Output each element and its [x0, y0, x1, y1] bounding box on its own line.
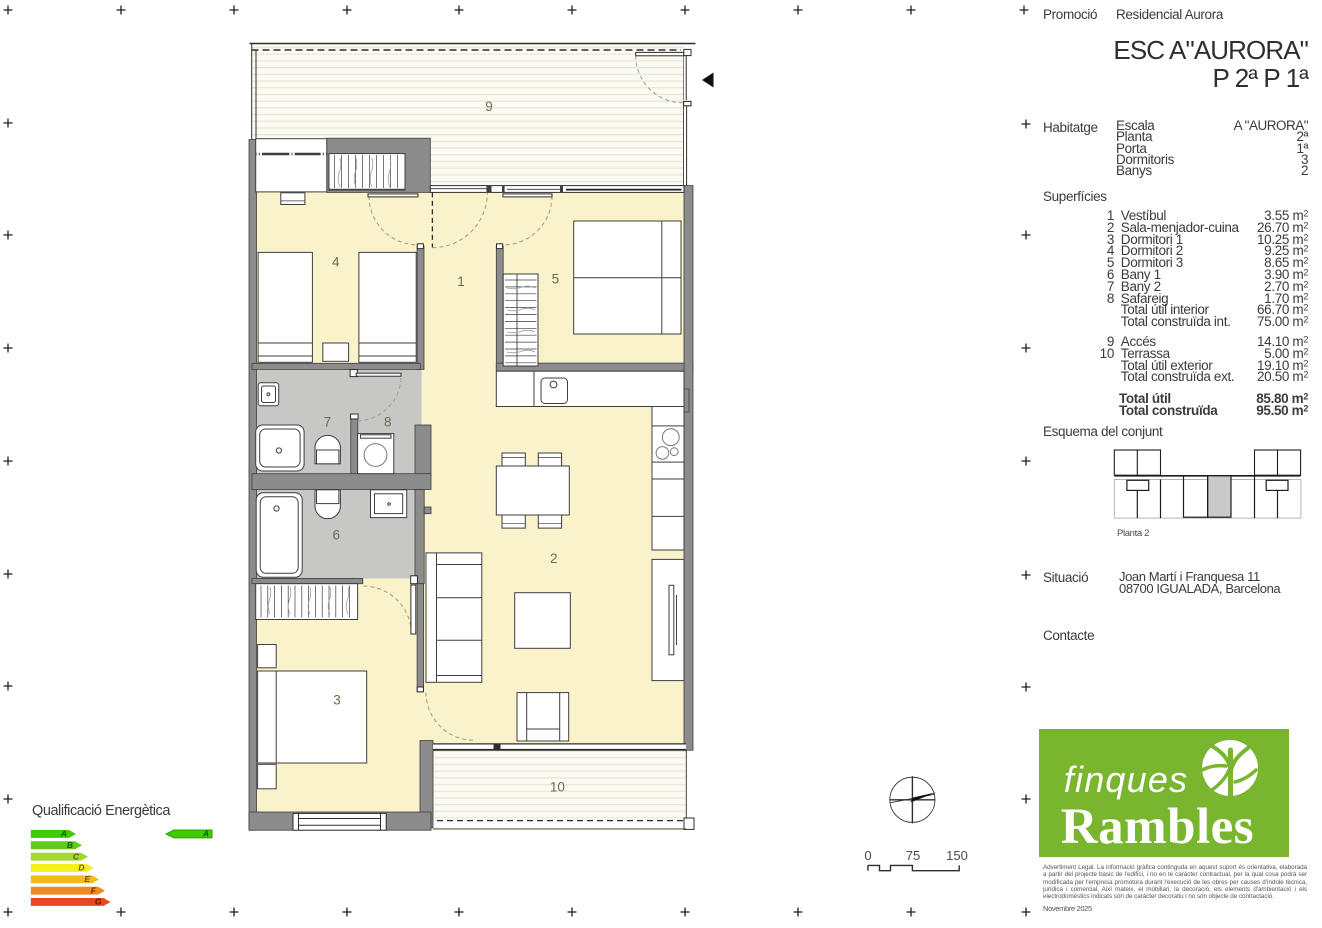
- svg-text:7: 7: [324, 414, 332, 429]
- svg-text:2: 2: [550, 551, 558, 566]
- svg-text:G: G: [95, 897, 102, 907]
- svg-text:A: A: [60, 829, 67, 839]
- svg-text:3: 3: [333, 693, 341, 708]
- svg-text:5: 5: [552, 271, 560, 286]
- svg-text:B: B: [67, 840, 73, 850]
- svg-text:6: 6: [332, 527, 340, 542]
- svg-text:F: F: [91, 885, 97, 895]
- svg-text:1: 1: [457, 274, 465, 289]
- svg-text:9: 9: [485, 99, 493, 114]
- svg-text:C: C: [73, 851, 80, 861]
- svg-text:4: 4: [332, 255, 340, 270]
- svg-text:75: 75: [906, 848, 920, 863]
- svg-text:10: 10: [550, 780, 565, 795]
- svg-text:8: 8: [384, 414, 392, 429]
- svg-text:D: D: [78, 863, 84, 873]
- svg-text:E: E: [84, 874, 90, 884]
- svg-text:A: A: [202, 829, 209, 839]
- svg-text:150: 150: [946, 848, 968, 863]
- svg-text:0: 0: [864, 848, 871, 863]
